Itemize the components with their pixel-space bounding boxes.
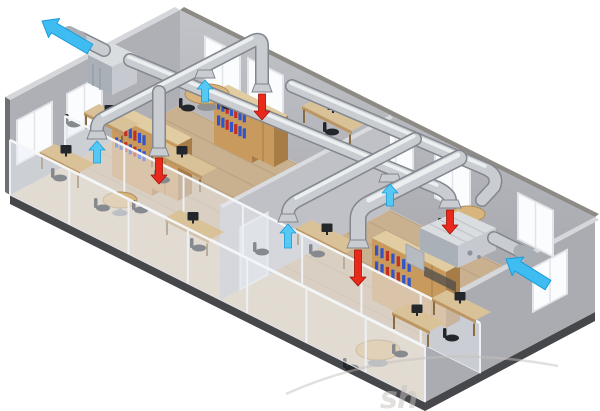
office-chair — [181, 105, 195, 112]
binder — [402, 259, 405, 269]
duct-diffuser — [347, 240, 369, 248]
monitor — [188, 212, 199, 221]
binder — [142, 135, 145, 145]
duct-diffuser — [149, 148, 169, 156]
binder — [230, 122, 233, 132]
office-chair — [445, 335, 459, 342]
duct-diffuser — [252, 84, 272, 92]
monitor — [412, 305, 423, 314]
duct-diffuser — [87, 131, 107, 139]
duct-diffuser — [195, 70, 215, 78]
binder — [375, 246, 378, 256]
duct-diffuser — [439, 200, 461, 208]
binder — [138, 133, 141, 143]
binder — [243, 128, 246, 138]
monitor — [61, 145, 72, 154]
hvac-office-illustration: sh — [0, 0, 600, 411]
ahu-port — [477, 255, 481, 259]
binder — [234, 124, 237, 134]
binder — [133, 131, 136, 141]
monitor — [177, 146, 188, 155]
watermark-text: sh — [380, 381, 417, 411]
binder — [226, 120, 229, 130]
binder — [221, 118, 224, 128]
binder — [238, 126, 241, 136]
isometric-office-ventilation-scene: sh — [0, 0, 600, 411]
monitor — [322, 224, 333, 233]
duct-diffuser — [278, 214, 298, 222]
binder — [129, 128, 132, 138]
binder — [386, 251, 389, 261]
binder — [217, 116, 220, 126]
monitor — [455, 292, 466, 301]
binder — [380, 248, 383, 258]
binder — [397, 256, 400, 266]
binder — [391, 254, 394, 264]
wall-sleeve-collar — [520, 251, 532, 257]
ahu-port — [467, 250, 472, 255]
